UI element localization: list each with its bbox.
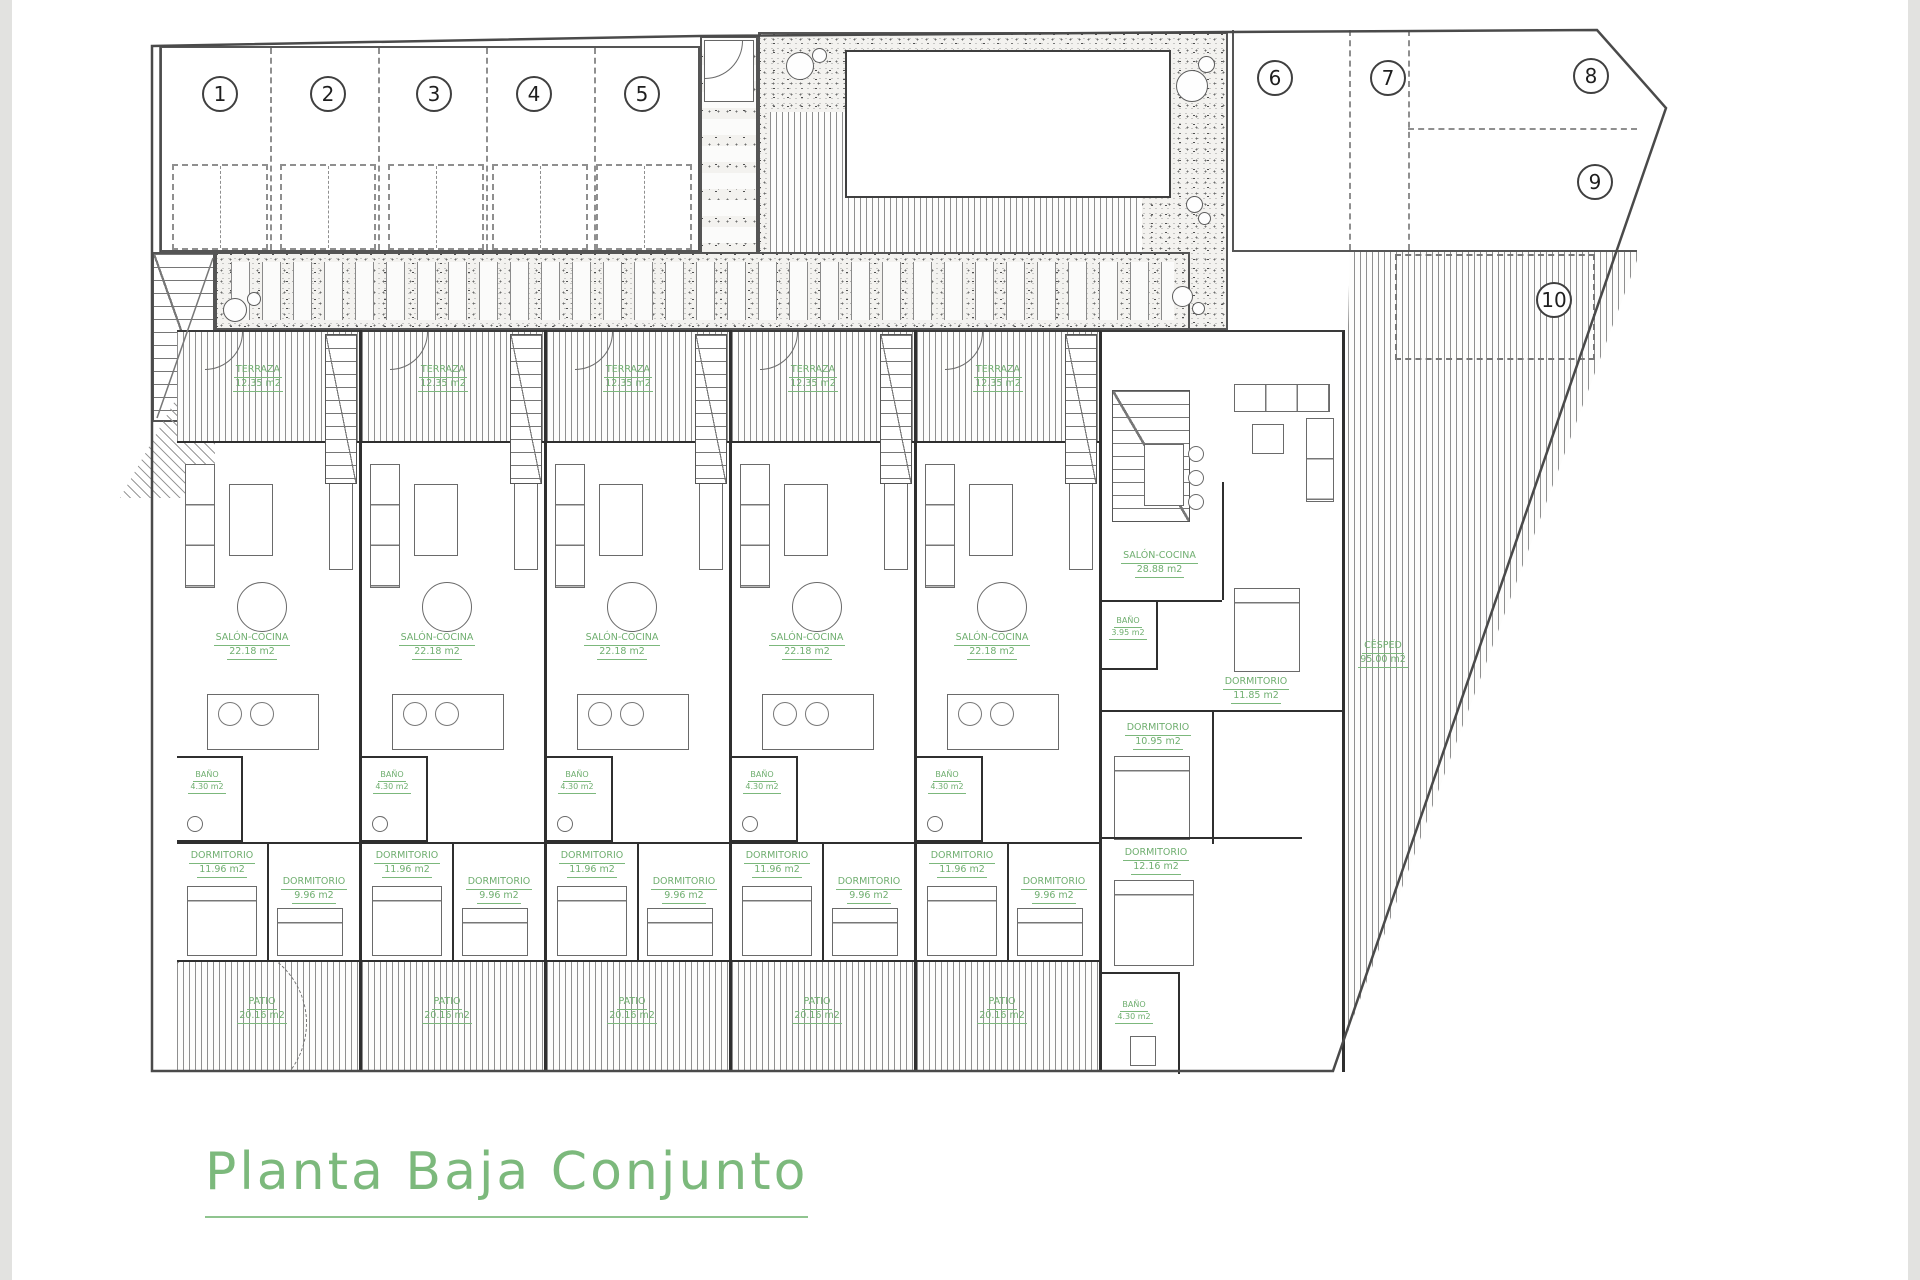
bathroom-label-area: 4.30 m2 <box>928 782 965 794</box>
end-bathroom1-label: BAÑO 3.95 m2 <box>1104 616 1152 640</box>
terrace-label-area: 12.35 m2 <box>603 378 653 392</box>
bedroom1-label-area: 11.96 m2 <box>752 864 802 878</box>
bathroom-label-name: BAÑO <box>933 770 960 782</box>
toilet-icon <box>557 816 573 832</box>
toilet-icon <box>187 816 203 832</box>
bed <box>187 886 257 956</box>
bedroom1-label-area: 11.96 m2 <box>567 864 617 878</box>
bedroom1-label-area: 11.96 m2 <box>197 864 247 878</box>
bedroom2-label-area: 9.96 m2 <box>477 890 520 904</box>
terrace-label-name: TERRAZA <box>604 364 652 378</box>
bedroom2-label-name: DORMITORIO <box>836 876 903 890</box>
row-house-unit: TERRAZA 12.35 m2 SALÓN-COCINA 22.18 m2 B… <box>177 330 359 1072</box>
unit-patio: PATIO 20.16 m2 <box>177 960 359 1072</box>
lawn-label: CÉSPED 95.00 m2 <box>1338 640 1428 668</box>
bedroom1-label-area: 11.96 m2 <box>937 864 987 878</box>
sofa <box>370 464 400 588</box>
sofa <box>1306 418 1334 502</box>
dining-table <box>237 582 287 632</box>
sofa <box>185 464 215 588</box>
patio-label: PATIO 20.16 m2 <box>567 996 697 1024</box>
parking-number-9: 9 <box>1577 164 1613 200</box>
storage-box <box>172 164 268 250</box>
bed <box>647 908 713 956</box>
patio-label-name: PATIO <box>617 996 648 1010</box>
swimming-pool <box>845 50 1171 198</box>
unit-patio: PATIO 20.16 m2 <box>917 960 1099 1072</box>
bedroom2-label-area: 9.96 m2 <box>1032 890 1075 904</box>
bedroom1-label: DORMITORIO 11.96 m2 <box>364 850 450 878</box>
plant-icon <box>786 52 814 80</box>
sofa <box>1234 384 1330 412</box>
kitchen-counter <box>762 694 874 750</box>
sofa <box>740 464 770 588</box>
parking-divider <box>1408 128 1637 130</box>
bed <box>372 886 442 956</box>
bedroom1-label-name: DORMITORIO <box>374 850 441 864</box>
bedroom1-label-name: DORMITORIO <box>929 850 996 864</box>
terrace-label-name: TERRAZA <box>419 364 467 378</box>
bed <box>1017 908 1083 956</box>
row-house-unit: TERRAZA 12.35 m2 SALÓN-COCINA 22.18 m2 B… <box>544 330 729 1072</box>
end-bathroom1-label-name: BAÑO <box>1114 616 1141 628</box>
storage-box <box>596 164 692 250</box>
bed <box>1234 588 1300 672</box>
kitchen-counter <box>207 694 319 750</box>
dining-table <box>422 582 472 632</box>
chair-icon <box>1188 494 1204 510</box>
parking-divider <box>270 48 272 250</box>
bedroom-divider-wall <box>1007 842 1009 960</box>
plant-icon <box>1186 196 1203 213</box>
parking-block-right: 6 7 8 9 <box>1232 30 1637 252</box>
terrace-label-name: TERRAZA <box>974 364 1022 378</box>
parking-divider <box>1408 30 1410 250</box>
coffee-table <box>969 484 1013 556</box>
bedroom2-label-name: DORMITORIO <box>466 876 533 890</box>
end-bedroom1-label-area: 11.85 m2 <box>1231 690 1281 704</box>
row-house-unit: TERRAZA 12.35 m2 SALÓN-COCINA 22.18 m2 B… <box>914 330 1099 1072</box>
parking-number-5: 5 <box>624 76 660 112</box>
interior-wall <box>1102 600 1222 602</box>
living-kitchen-label-area: 22.18 m2 <box>597 646 647 660</box>
patio-label-area: 20.16 m2 <box>607 1010 657 1024</box>
title-block: Planta Baja Conjunto <box>205 1142 808 1218</box>
bedroom1-label-name: DORMITORIO <box>744 850 811 864</box>
living-kitchen-label-name: SALÓN-COCINA <box>214 632 291 646</box>
kitchen-counter <box>577 694 689 750</box>
end-bedroom2-label: DORMITORIO 10.95 m2 <box>1108 722 1208 750</box>
living-kitchen-label-name: SALÓN-COCINA <box>769 632 846 646</box>
parking-number-9-label: 9 <box>1589 170 1602 194</box>
coffee-table <box>784 484 828 556</box>
patio-label: PATIO 20.16 m2 <box>382 996 512 1024</box>
parking-number-4-label: 4 <box>528 82 541 106</box>
bedroom2-label-area: 9.96 m2 <box>662 890 705 904</box>
storage-box <box>492 164 588 250</box>
parking-number-4: 4 <box>516 76 552 112</box>
living-kitchen-label-area: 22.18 m2 <box>227 646 277 660</box>
chair-icon <box>1188 446 1204 462</box>
parking-number-1: 1 <box>202 76 238 112</box>
bathroom-label-name: BAÑO <box>748 770 775 782</box>
end-living-kitchen-label: SALÓN-COCINA 28.88 m2 <box>1102 550 1217 578</box>
bedroom2-label: DORMITORIO 9.96 m2 <box>271 876 357 904</box>
interior-wall <box>1102 837 1302 839</box>
end-bathroom2-label: BAÑO 4.30 m2 <box>1106 1000 1162 1024</box>
plant-icon <box>1192 302 1205 315</box>
toilet-icon <box>742 816 758 832</box>
dining-table <box>977 582 1027 632</box>
living-kitchen-label: SALÓN-COCINA 22.18 m2 <box>742 632 872 660</box>
parking-number-2: 2 <box>310 76 346 112</box>
patio-label-name: PATIO <box>432 996 463 1010</box>
storage-box <box>280 164 376 250</box>
bedroom2-label-area: 9.96 m2 <box>847 890 890 904</box>
parking-number-3: 3 <box>416 76 452 112</box>
bedroom-divider-wall <box>637 842 639 960</box>
end-bedroom1-label-name: DORMITORIO <box>1223 676 1290 690</box>
end-living-kitchen-label-area: 28.88 m2 <box>1135 564 1185 578</box>
kitchen-table <box>1144 444 1184 506</box>
bed <box>832 908 898 956</box>
parking-divider <box>1349 30 1351 250</box>
bedroom1-label: DORMITORIO 11.96 m2 <box>549 850 635 878</box>
end-bathroom1-label-area: 3.95 m2 <box>1109 628 1146 640</box>
living-kitchen-label-name: SALÓN-COCINA <box>584 632 661 646</box>
armchair <box>1252 424 1284 454</box>
row-house-unit: TERRAZA 12.35 m2 SALÓN-COCINA 22.18 m2 B… <box>729 330 914 1072</box>
bathroom-label: BAÑO 4.30 m2 <box>919 770 975 794</box>
end-bathroom-2: BAÑO 4.30 m2 <box>1102 972 1180 1074</box>
bedroom2-label: DORMITORIO 9.96 m2 <box>1011 876 1097 904</box>
bathroom-label-name: BAÑO <box>378 770 405 782</box>
terrace-label: TERRAZA 12.35 m2 <box>378 364 508 392</box>
plant-icon <box>1198 56 1215 73</box>
parking-divider <box>378 48 380 250</box>
bathroom-label-name: BAÑO <box>193 770 220 782</box>
bathroom-label: BAÑO 4.30 m2 <box>549 770 605 794</box>
coffee-table <box>229 484 273 556</box>
bedroom2-label: DORMITORIO 9.96 m2 <box>456 876 542 904</box>
plant-icon <box>1198 212 1211 225</box>
patio-label: PATIO 20.16 m2 <box>752 996 882 1024</box>
living-kitchen-label-area: 22.18 m2 <box>412 646 462 660</box>
unit-bathroom: BAÑO 4.30 m2 <box>177 756 243 842</box>
end-unit: SALÓN-COCINA 28.88 m2 BAÑO 3.95 m2 DORMI… <box>1099 330 1345 1072</box>
end-bedroom2-label-area: 10.95 m2 <box>1133 736 1183 750</box>
parking-number-7: 7 <box>1370 60 1406 96</box>
patio-label: PATIO 20.16 m2 <box>937 996 1067 1024</box>
parking-number-7-label: 7 <box>1382 66 1395 90</box>
parking-number-10: 10 <box>1536 282 1572 318</box>
end-bedroom1-label: DORMITORIO 11.85 m2 <box>1210 676 1302 704</box>
floor-plan-canvas: 1 2 3 4 5 6 7 8 9 <box>0 0 1920 1280</box>
bathroom-label: BAÑO 4.30 m2 <box>364 770 420 794</box>
parking-number-6-label: 6 <box>1269 66 1282 90</box>
parking-number-5-label: 5 <box>636 82 649 106</box>
patio-label: PATIO 20.16 m2 <box>197 996 327 1024</box>
bedroom2-label: DORMITORIO 9.96 m2 <box>826 876 912 904</box>
unit-patio: PATIO 20.16 m2 <box>732 960 914 1072</box>
unit-bathroom: BAÑO 4.30 m2 <box>547 756 613 842</box>
terrace-label-area: 12.35 m2 <box>418 378 468 392</box>
living-kitchen-label: SALÓN-COCINA 22.18 m2 <box>557 632 687 660</box>
unit-patio: PATIO 20.16 m2 <box>362 960 544 1072</box>
end-living-kitchen-label-name: SALÓN-COCINA <box>1121 550 1198 564</box>
living-kitchen-label: SALÓN-COCINA 22.18 m2 <box>372 632 502 660</box>
interior-wall <box>1102 710 1342 712</box>
plant-icon <box>1172 286 1193 307</box>
unit-bathroom: BAÑO 4.30 m2 <box>917 756 983 842</box>
parking-block-left: 1 2 3 4 5 <box>160 46 700 252</box>
bedroom2-label-name: DORMITORIO <box>651 876 718 890</box>
bathroom-label: BAÑO 4.30 m2 <box>734 770 790 794</box>
parking-number-8-label: 8 <box>1585 64 1598 88</box>
kitchen-counter <box>947 694 1059 750</box>
bed <box>927 886 997 956</box>
shower-icon <box>1130 1036 1156 1066</box>
bathroom-label-name: BAÑO <box>563 770 590 782</box>
paving-slabs <box>231 262 1174 320</box>
row-house-unit: TERRAZA 12.35 m2 SALÓN-COCINA 22.18 m2 B… <box>359 330 544 1072</box>
sofa <box>555 464 585 588</box>
lawn-label-name: CÉSPED <box>1362 640 1404 654</box>
terrace-label-area: 12.35 m2 <box>788 378 838 392</box>
kitchen-counter <box>392 694 504 750</box>
terrace-label: TERRAZA 12.35 m2 <box>193 364 323 392</box>
lawn-label-area: 95.00 m2 <box>1358 654 1408 668</box>
unit-patio: PATIO 20.16 m2 <box>547 960 729 1072</box>
bedroom2-label: DORMITORIO 9.96 m2 <box>641 876 727 904</box>
bed <box>742 886 812 956</box>
bedroom1-label: DORMITORIO 11.96 m2 <box>734 850 820 878</box>
bathroom-label-area: 4.30 m2 <box>188 782 225 794</box>
patio-label-name: PATIO <box>247 996 278 1010</box>
living-kitchen-label-area: 22.18 m2 <box>967 646 1017 660</box>
chair-icon <box>1188 470 1204 486</box>
plant-icon <box>223 298 247 322</box>
end-bedroom3-label-area: 12.16 m2 <box>1131 861 1181 875</box>
patio-label-area: 20.16 m2 <box>237 1010 287 1024</box>
parking-number-2-label: 2 <box>322 82 335 106</box>
parking-divider <box>486 48 488 250</box>
plant-icon <box>1176 70 1208 102</box>
patio-label-area: 20.16 m2 <box>977 1010 1027 1024</box>
terrace-label-area: 12.35 m2 <box>233 378 283 392</box>
bedroom1-label: DORMITORIO 11.96 m2 <box>179 850 265 878</box>
dining-table <box>792 582 842 632</box>
terrace-label: TERRAZA 12.35 m2 <box>748 364 878 392</box>
scan-edge-left <box>0 0 12 1280</box>
bed <box>462 908 528 956</box>
living-kitchen-label: SALÓN-COCINA 22.18 m2 <box>187 632 317 660</box>
bedroom-divider-wall <box>822 842 824 960</box>
end-bedroom2-label-name: DORMITORIO <box>1125 722 1192 736</box>
bedroom1-label: DORMITORIO 11.96 m2 <box>919 850 1005 878</box>
plant-icon <box>812 48 827 63</box>
parking-number-3-label: 3 <box>428 82 441 106</box>
bedroom2-label-name: DORMITORIO <box>281 876 348 890</box>
unit-stairs <box>325 334 357 484</box>
entry-cell <box>704 40 754 102</box>
plant-icon <box>247 292 261 306</box>
end-bathroom-1: BAÑO 3.95 m2 <box>1102 600 1158 670</box>
door-arc-icon <box>705 41 743 79</box>
patio-label-area: 20.16 m2 <box>792 1010 842 1024</box>
scan-edge-right <box>1908 0 1920 1280</box>
bathroom-label-area: 4.30 m2 <box>743 782 780 794</box>
bathroom-label-area: 4.30 m2 <box>558 782 595 794</box>
parking-number-1-label: 1 <box>214 82 227 106</box>
living-kitchen-label-name: SALÓN-COCINA <box>954 632 1031 646</box>
parking-number-10-label: 10 <box>1541 288 1566 312</box>
patio-label-name: PATIO <box>802 996 833 1010</box>
bathroom-label: BAÑO 4.30 m2 <box>179 770 235 794</box>
unit-stairs <box>695 334 727 484</box>
bedroom1-label-area: 11.96 m2 <box>382 864 432 878</box>
living-kitchen-label: SALÓN-COCINA 22.18 m2 <box>927 632 1057 660</box>
interior-wall <box>1222 482 1224 600</box>
bed <box>557 886 627 956</box>
bathroom-label-area: 4.30 m2 <box>373 782 410 794</box>
unit-stairs <box>1065 334 1097 484</box>
terrace-label: TERRAZA 12.35 m2 <box>563 364 693 392</box>
sofa <box>925 464 955 588</box>
bedroom2-label-name: DORMITORIO <box>1021 876 1088 890</box>
bed <box>1114 756 1190 840</box>
bedroom2-label-area: 9.96 m2 <box>292 890 335 904</box>
end-bedroom3-label: DORMITORIO 12.16 m2 <box>1106 847 1206 875</box>
interior-wall <box>1212 710 1214 844</box>
parking-number-6: 6 <box>1257 60 1293 96</box>
coffee-table <box>414 484 458 556</box>
unit-bathroom: BAÑO 4.30 m2 <box>732 756 798 842</box>
terrace-label: TERRAZA 12.35 m2 <box>933 364 1063 392</box>
end-bathroom2-label-area: 4.30 m2 <box>1115 1012 1152 1024</box>
end-bedroom3-label-name: DORMITORIO <box>1123 847 1190 861</box>
unit-bathroom: BAÑO 4.30 m2 <box>362 756 428 842</box>
drawing-title: Planta Baja Conjunto <box>205 1142 808 1218</box>
living-kitchen-label-area: 22.18 m2 <box>782 646 832 660</box>
bedroom-divider-wall <box>267 842 269 960</box>
row-house-units: TERRAZA 12.35 m2 SALÓN-COCINA 22.18 m2 B… <box>177 330 1099 1072</box>
end-bathroom2-label-name: BAÑO <box>1120 1000 1147 1012</box>
toilet-icon <box>372 816 388 832</box>
patio-label-area: 20.16 m2 <box>422 1010 472 1024</box>
patio-label-name: PATIO <box>987 996 1018 1010</box>
paved-walkway <box>215 252 1190 330</box>
bedroom1-label-name: DORMITORIO <box>189 850 256 864</box>
bed <box>277 908 343 956</box>
toilet-icon <box>927 816 943 832</box>
coffee-table <box>599 484 643 556</box>
terrace-label-name: TERRAZA <box>234 364 282 378</box>
dining-table <box>607 582 657 632</box>
bed <box>1114 880 1194 966</box>
terrace-label-area: 12.35 m2 <box>973 378 1023 392</box>
bedroom-divider-wall <box>452 842 454 960</box>
bedroom1-label-name: DORMITORIO <box>559 850 626 864</box>
terrace-label-name: TERRAZA <box>789 364 837 378</box>
parking-number-8: 8 <box>1573 58 1609 94</box>
unit-stairs <box>510 334 542 484</box>
living-kitchen-label-name: SALÓN-COCINA <box>399 632 476 646</box>
storage-box <box>388 164 484 250</box>
unit-stairs <box>880 334 912 484</box>
